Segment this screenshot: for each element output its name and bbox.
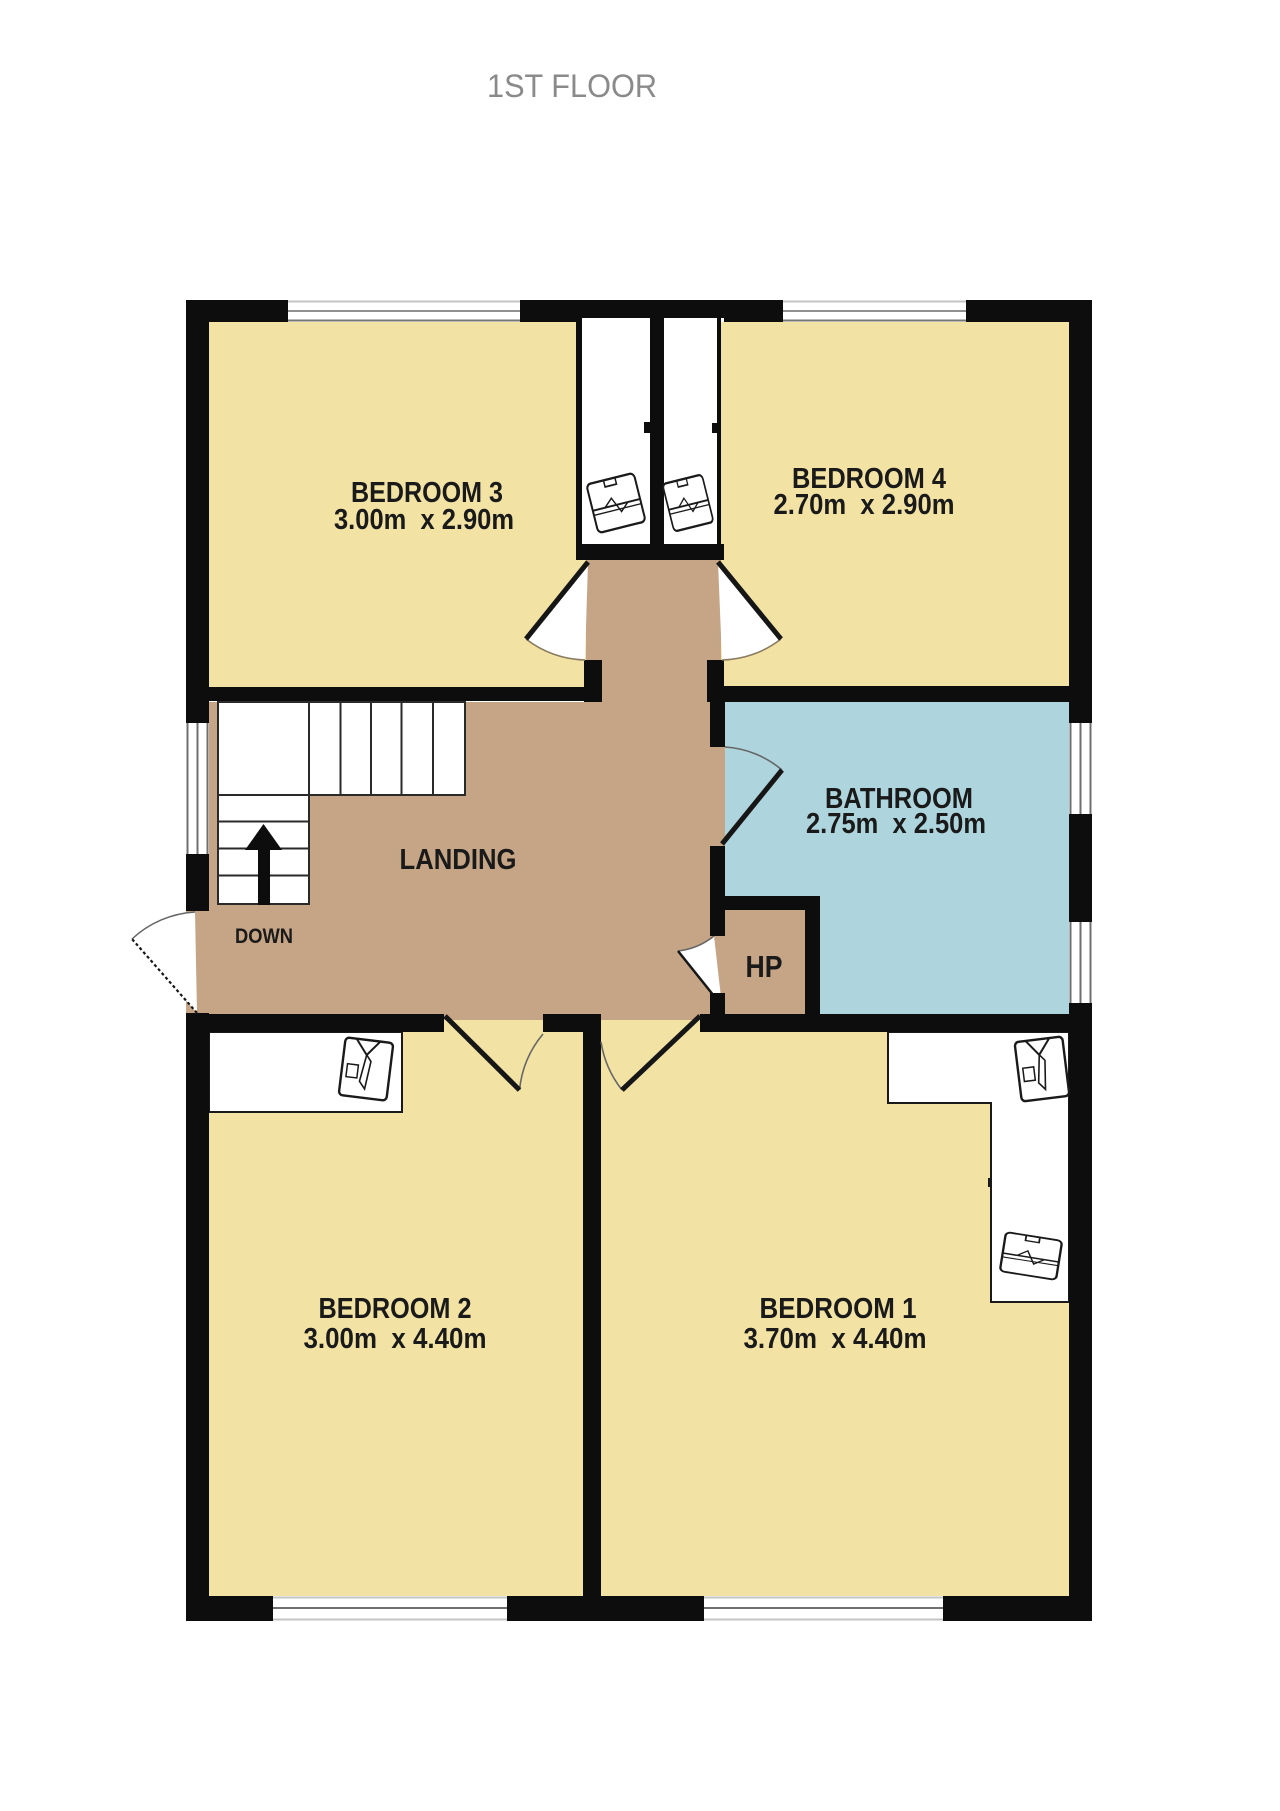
svg-text:2.70m x 2.90m: 2.70m x 2.90m xyxy=(774,489,955,521)
svg-text:HP: HP xyxy=(746,949,783,984)
svg-text:LANDING: LANDING xyxy=(400,844,517,876)
svg-text:3.70m x 4.40m: 3.70m x 4.40m xyxy=(744,1323,927,1355)
svg-text:3.00m x 4.40m: 3.00m x 4.40m xyxy=(304,1323,487,1355)
svg-text:2.75m x 2.50m: 2.75m x 2.50m xyxy=(806,808,986,840)
svg-text:BEDROOM 2: BEDROOM 2 xyxy=(319,1293,472,1325)
svg-text:3.00m x 2.90m: 3.00m x 2.90m xyxy=(334,504,514,536)
svg-text:BEDROOM 1: BEDROOM 1 xyxy=(760,1293,917,1325)
svg-text:DOWN: DOWN xyxy=(235,925,293,948)
svg-text:1ST FLOOR: 1ST FLOOR xyxy=(487,68,657,104)
